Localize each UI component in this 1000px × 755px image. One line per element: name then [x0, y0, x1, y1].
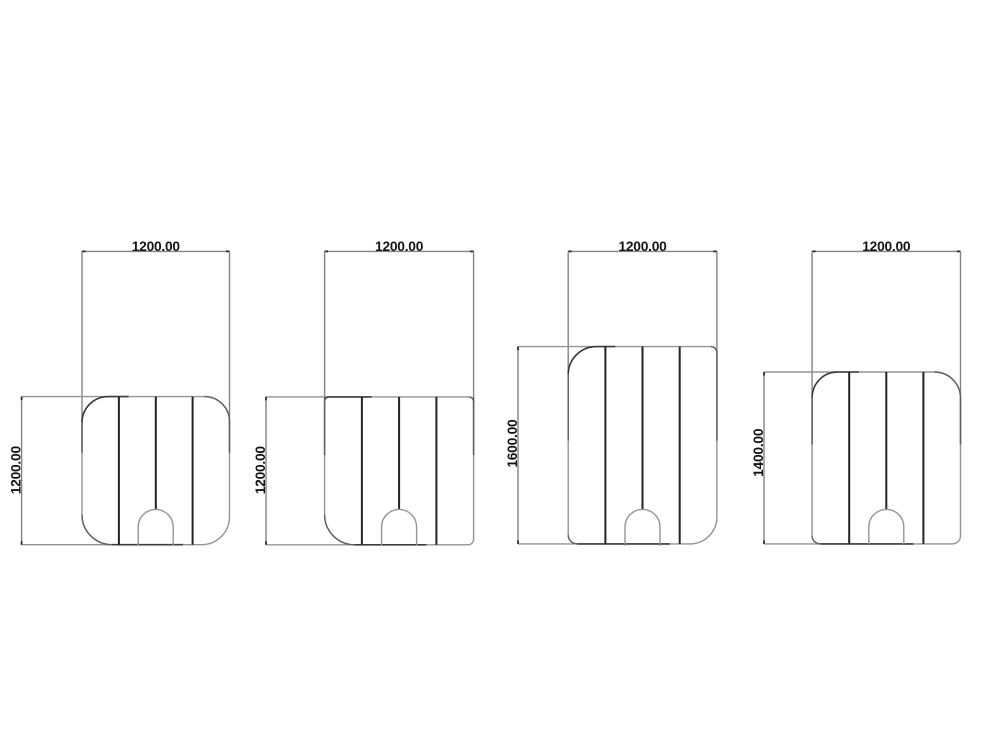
svg-text:1600.00: 1600.00: [505, 419, 520, 468]
svg-text:1200.00: 1200.00: [253, 446, 268, 495]
svg-text:1200.00: 1200.00: [862, 239, 911, 254]
svg-text:1200.00: 1200.00: [375, 239, 424, 254]
svg-text:1200.00: 1200.00: [8, 446, 23, 495]
svg-text:1400.00: 1400.00: [751, 428, 766, 477]
svg-text:1200.00: 1200.00: [618, 239, 667, 254]
svg-text:1200.00: 1200.00: [132, 239, 181, 254]
